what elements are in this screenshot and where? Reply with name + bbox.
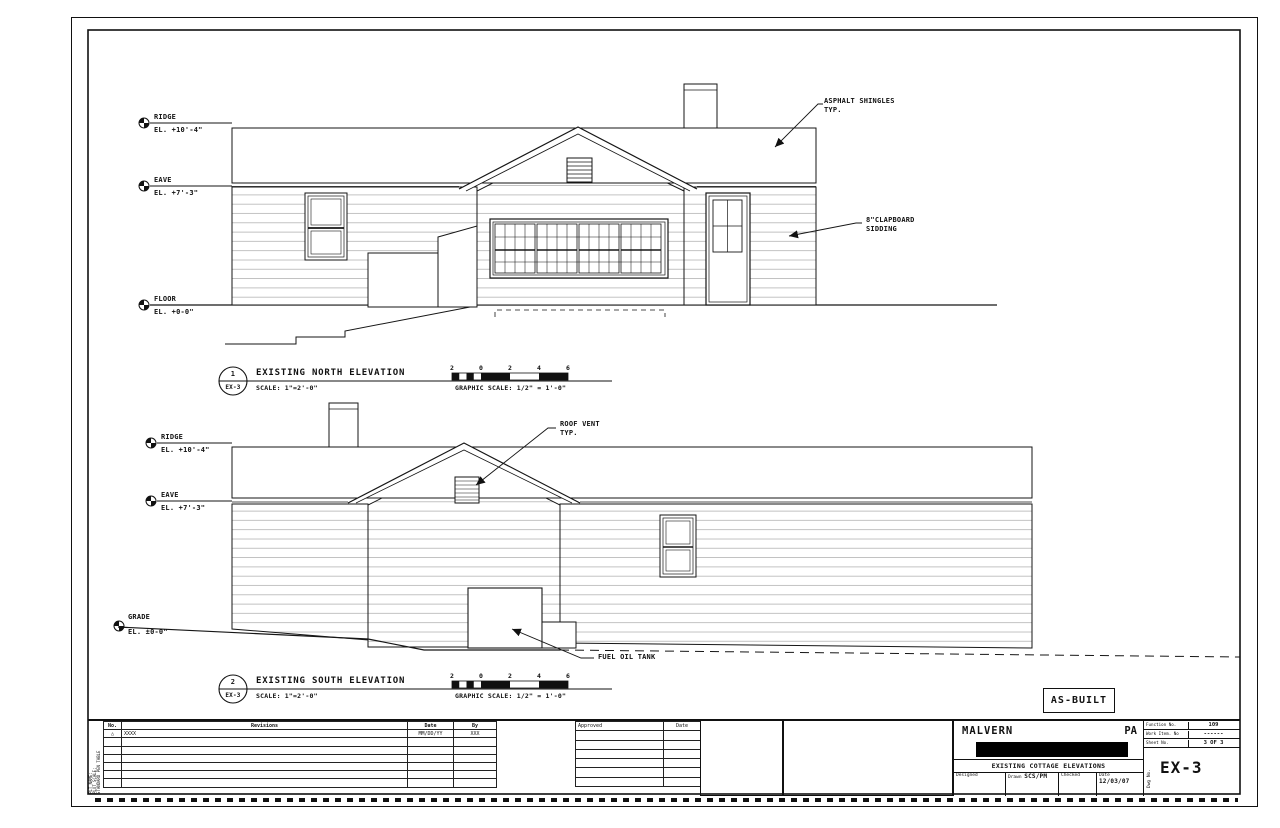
revisions-header-by: By [454, 722, 497, 730]
siding-annotation: 8"CLAPBOARD [866, 216, 915, 225]
graphic-scale-bar-north [452, 373, 568, 380]
south-elevation-title: EXISTING SOUTH ELEVATION [256, 677, 405, 686]
project-state: PA [1124, 725, 1137, 737]
south-grade-dashed [560, 650, 1240, 657]
work-item-label: Work Item. No [1146, 731, 1179, 736]
scale-tick: 2 [446, 364, 458, 373]
function-no-value: 109 [1188, 722, 1238, 730]
shingles-annotation: ASPHALT SHINGLES [824, 97, 895, 106]
detail-number-2: 2 [219, 678, 247, 687]
titleblock-empty-box-1 [700, 721, 783, 796]
datum-symbol [114, 621, 124, 631]
detail-sheet-ref-2: EX-3 [219, 691, 247, 700]
north-chimney [684, 84, 717, 128]
revisions-header-date: Date [408, 722, 454, 730]
dwg-no-label: Dwg No. [1147, 769, 1152, 788]
revision-row-desc: XXXX [122, 730, 408, 738]
north-window-band [490, 219, 668, 278]
north-bumpout [368, 253, 438, 307]
sheet-info-block: Function No. 109 Work Item. No ------ Sh… [1143, 721, 1240, 796]
north-gable-vent [567, 158, 592, 182]
scale-tick: 2 [446, 672, 458, 681]
south-elevation-scale: SCALE: 1"=2'-0" [256, 692, 318, 701]
datum-symbol [139, 181, 149, 191]
revision-row-by: XXX [454, 730, 497, 738]
south-grade-elevation: EL. ±0-0" [128, 628, 168, 637]
scale-tick: 0 [475, 672, 487, 681]
south-window [660, 515, 696, 577]
north-grade-steps [225, 307, 470, 344]
function-no-label: Function No. [1146, 722, 1176, 727]
north-elevation-title: EXISTING NORTH ELEVATION [256, 369, 405, 378]
datum-symbol [139, 300, 149, 310]
datum-symbol [139, 118, 149, 128]
north-foundation-dashed [495, 310, 665, 317]
south-elevation-drawing [118, 403, 1240, 658]
north-elevation-drawing [150, 84, 997, 344]
revisions-table: No. Revisions Date By △ XXXX MM/DD/YY XX… [103, 721, 497, 788]
south-wall-right [560, 504, 1032, 648]
north-left-window [305, 193, 347, 260]
revision-row-date: MM/DD/YY [408, 730, 454, 738]
revision-row-cell [104, 779, 122, 787]
south-grade-label: GRADE [128, 613, 150, 622]
scale-tick: 2 [504, 672, 516, 681]
detail-sheet-ref-1: EX-3 [219, 383, 247, 392]
revisions-header-revisions: Revisions [122, 722, 408, 730]
south-chimney [329, 403, 358, 447]
roof-vent-annotation-2: TYP. [560, 429, 578, 438]
revision-delta-icon: △ [104, 730, 122, 738]
revision-row-cell [104, 738, 122, 746]
work-item-value: ------ [1188, 731, 1238, 739]
north-ridge-label: RIDGE [154, 113, 176, 122]
approved-table: Approved Date [575, 721, 701, 787]
fuel-oil-tank [468, 588, 542, 648]
south-roof-vent [455, 477, 479, 503]
north-floor-label: FLOOR [154, 295, 176, 304]
north-door [706, 193, 750, 305]
approved-date-header: Date [664, 722, 701, 731]
south-ridge-elevation: EL. +10'-4" [161, 446, 210, 455]
south-ridge-label: RIDGE [161, 433, 183, 442]
drawing-title: EXISTING COTTAGE ELEVATIONS [954, 762, 1143, 770]
siding-annotation-2: SIDDING [866, 225, 897, 234]
as-built-stamp: AS-BUILT [1043, 688, 1115, 713]
designed-cell: Designed [954, 772, 1005, 796]
date-cell: Date 12/03/07 [1096, 772, 1144, 796]
north-eave-elevation: EL. +7'-3" [154, 189, 198, 198]
date-value: 12/03/07 [1099, 778, 1130, 785]
roof-vent-annotation: ROOF VENT [560, 420, 600, 429]
scale-tick: 4 [533, 364, 545, 373]
scale-tick: 2 [504, 364, 516, 373]
approved-header: Approved [576, 722, 664, 731]
graphic-scale-caption-south: GRAPHIC SCALE: 1/2" = 1'-0" [455, 692, 566, 701]
scale-tick: 6 [562, 364, 574, 373]
graphic-scale-bar-south [452, 681, 568, 688]
north-eave-label: EAVE [154, 176, 172, 185]
drawn-cell: Drawn SCS/PM [1005, 772, 1058, 796]
drawing-sheet: RIDGE EL. +10'-4" EAVE EL. +7'-3" FLOOR … [0, 0, 1280, 828]
datum-symbol [146, 438, 156, 448]
revision-row-cell [104, 762, 122, 770]
scale-tick: 4 [533, 672, 545, 681]
revisions-header-no: No. [104, 722, 122, 730]
shingles-annotation-2: TYP. [824, 106, 842, 115]
scale-tick: 6 [562, 672, 574, 681]
sheet-no-label: Sheet No. [1146, 740, 1169, 745]
sheet-no-value: 3 OF 3 [1188, 740, 1238, 748]
south-eave-label: EAVE [161, 491, 179, 500]
south-eave-elevation: EL. +7'-3" [161, 504, 205, 513]
graphic-scale-caption: GRAPHIC SCALE: 1/2" = 1'-0" [455, 384, 566, 393]
titleblock-empty-box-2 [783, 721, 953, 796]
redaction-bar [976, 742, 1128, 757]
project-block: MALVERN PA EXISTING COTTAGE ELEVATIONS D… [953, 721, 1143, 796]
north-elevation-scale: SCALE: 1"=2'-0" [256, 384, 318, 393]
revision-row-cell [104, 754, 122, 762]
datum-symbol [146, 496, 156, 506]
scale-tick: 0 [475, 364, 487, 373]
project-city: MALVERN [962, 725, 1013, 737]
title-block: PLT NAME: PLOT SCALE: STANDARD PEN TABLE… [88, 719, 1240, 794]
revision-row-cell [104, 746, 122, 754]
north-vestibule [438, 226, 477, 307]
plot-margin-note: PLT NAME: PLOT SCALE: STANDARD PEN TABLE [89, 724, 101, 794]
checked-cell: Checked [1058, 772, 1096, 796]
north-ridge-elevation: EL. +10'-4" [154, 126, 203, 135]
north-floor-elevation: EL. +0-0" [154, 308, 194, 317]
drawn-value: SCS/PM [1024, 773, 1047, 780]
fuel-tank-annotation: FUEL OIL TANK [598, 653, 655, 662]
revision-row-cell [104, 771, 122, 779]
south-roof [232, 447, 1032, 498]
dwg-no-value: EX-3 [1160, 758, 1203, 777]
south-wall-left [232, 504, 368, 640]
datum-symbols [114, 118, 156, 631]
detail-number-1: 1 [219, 370, 247, 379]
